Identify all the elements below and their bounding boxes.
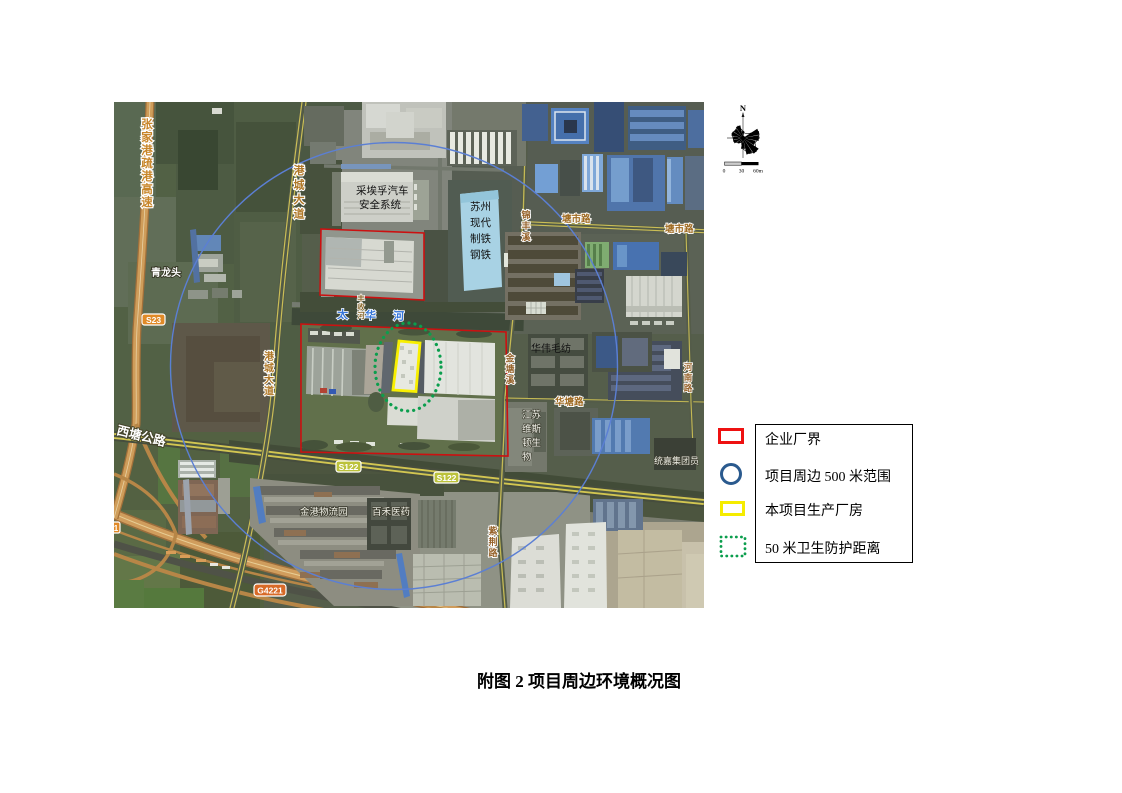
svg-text:丰收河: 丰收河 <box>357 293 365 320</box>
svg-text:1: 1 <box>114 524 119 533</box>
svg-text:金港物流园: 金港物流园 <box>300 506 348 518</box>
svg-text:G4221: G4221 <box>257 586 283 596</box>
svg-text:60m: 60m <box>753 169 764 175</box>
svg-text:港城大道: 港城大道 <box>264 350 275 398</box>
svg-text:钢铁: 钢铁 <box>470 248 491 261</box>
svg-text:张家港疏港高速: 张家港疏港高速 <box>141 117 153 209</box>
svg-text:S122: S122 <box>437 473 457 483</box>
svg-text:金塘溪: 金塘溪 <box>504 352 515 385</box>
svg-text:现代: 现代 <box>470 217 491 229</box>
svg-text:维斯: 维斯 <box>522 423 542 435</box>
svg-text:N: N <box>740 103 747 113</box>
svg-text:华伟毛纺: 华伟毛纺 <box>531 342 571 355</box>
svg-text:河南路: 河南路 <box>684 362 693 393</box>
svg-text:塘市路: 塘市路 <box>562 213 591 225</box>
svg-text:统嘉集团员: 统嘉集团员 <box>654 455 699 466</box>
svg-text:采埃孚汽车: 采埃孚汽车 <box>356 184 409 197</box>
svg-text:0: 0 <box>723 169 726 175</box>
svg-text:物: 物 <box>522 451 532 463</box>
svg-text:S23: S23 <box>146 315 161 325</box>
svg-text:顿生: 顿生 <box>522 437 542 449</box>
svg-text:安全系统: 安全系统 <box>359 198 401 211</box>
svg-text:百禾医药: 百禾医药 <box>372 507 410 518</box>
svg-text:青龙头: 青龙头 <box>151 266 181 279</box>
svg-text:制铁: 制铁 <box>470 232 491 245</box>
svg-text:30: 30 <box>739 169 745 175</box>
svg-text:华塘路: 华塘路 <box>555 396 584 408</box>
svg-text:苏州: 苏州 <box>470 200 491 213</box>
svg-text:塘市路: 塘市路 <box>665 223 694 235</box>
svg-text:紫荆路: 紫荆路 <box>488 525 498 558</box>
svg-text:江苏: 江苏 <box>522 409 542 421</box>
svg-text:S122: S122 <box>339 462 359 472</box>
svg-text:锦丰溪: 锦丰溪 <box>521 209 531 242</box>
